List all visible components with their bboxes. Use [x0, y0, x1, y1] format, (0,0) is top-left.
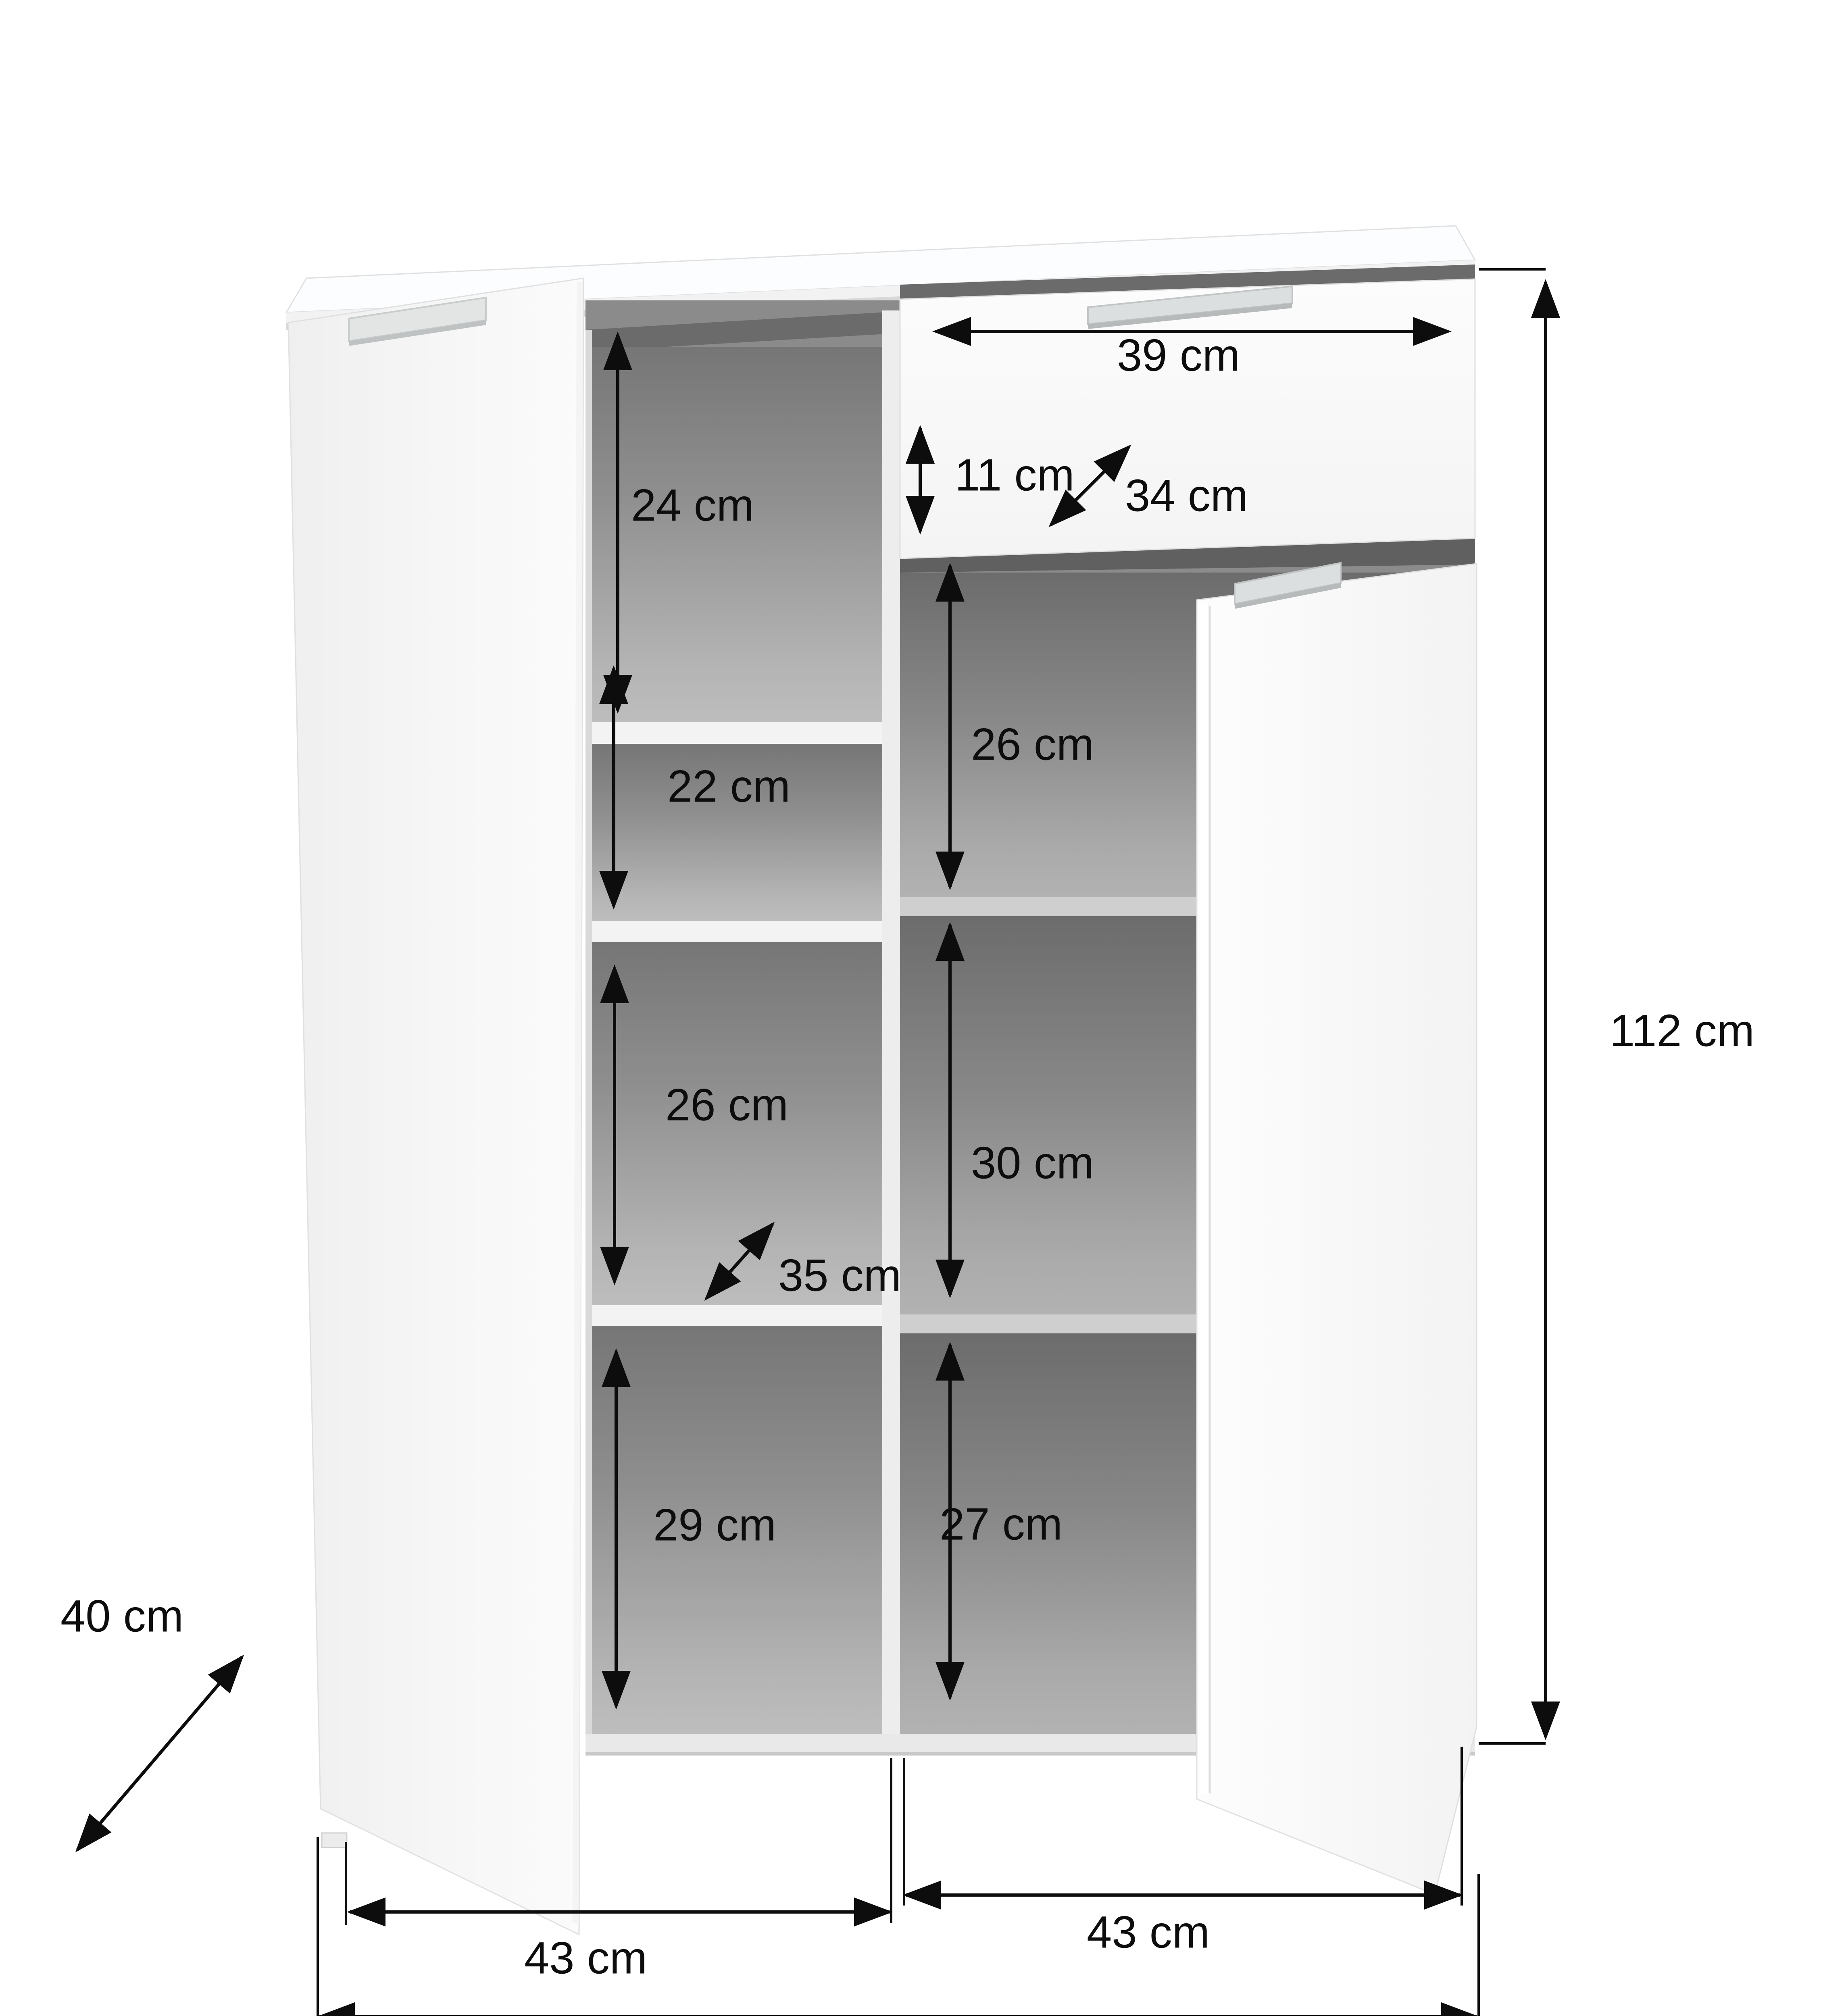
left-door-edge-highlight	[576, 282, 580, 1923]
right-door	[1197, 563, 1477, 1894]
dim-label-43cm-right: 43 cm	[1087, 1907, 1210, 1958]
dim-label-35cm: 35 cm	[778, 1250, 901, 1301]
cabinet	[286, 226, 1477, 1935]
dim-label-24cm: 24 cm	[631, 480, 754, 531]
shelf-left-2	[585, 921, 882, 942]
left-door-panel	[288, 278, 583, 1935]
centre-divider	[882, 310, 900, 1752]
dim-label-29cm: 29 cm	[653, 1500, 776, 1550]
dim-label-26cm-left: 26 cm	[665, 1080, 788, 1130]
right-door-panel	[1197, 564, 1477, 1894]
dim-label-112cm: 112 cm	[1610, 1006, 1754, 1056]
dim-label-22cm: 22 cm	[667, 761, 790, 812]
dim-label-43cm-left: 43 cm	[524, 1933, 647, 1983]
dim-label-39cm: 39 cm	[1117, 330, 1240, 381]
dimension-diagram: 24 cm 22 cm 26 cm 29 cm 35 cm 39 cm 11 c…	[0, 0, 1846, 2016]
compartment-left-1	[585, 347, 882, 722]
left-door	[288, 278, 583, 1935]
dim-label-11cm: 11 cm	[955, 450, 1075, 500]
dim-label-27cm: 27 cm	[940, 1499, 1063, 1549]
dim-label-40cm: 40 cm	[60, 1591, 183, 1641]
left-wall-edge	[585, 330, 592, 1734]
dim-label-30cm: 30 cm	[971, 1138, 1094, 1188]
dim-label-26cm-right: 26 cm	[971, 719, 1094, 770]
cabinet-foot-left	[322, 1833, 347, 1847]
shelf-left-1	[585, 722, 882, 744]
dim-label-34cm: 34 cm	[1125, 471, 1248, 521]
dim-arrow-40cm	[77, 1657, 242, 1850]
shelf-left-3	[585, 1305, 882, 1326]
